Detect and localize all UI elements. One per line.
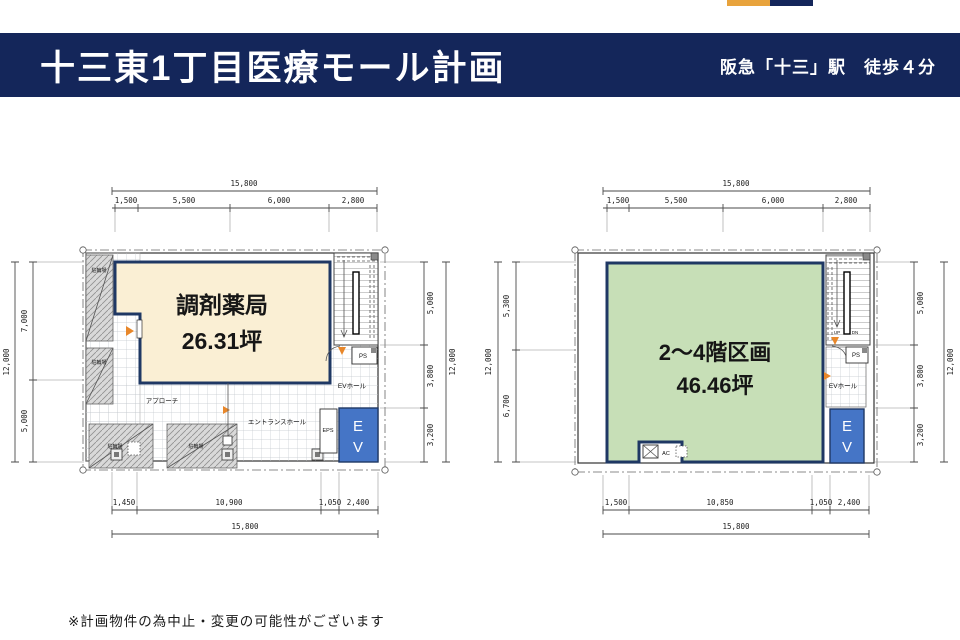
dim-label: 5,000: [20, 409, 29, 432]
dim-label: 5,000: [916, 291, 925, 314]
room-area-label: 46.46坪: [676, 373, 753, 398]
staircase: UP DN: [826, 253, 870, 345]
elevator-label: E: [842, 418, 852, 435]
dim-left: 5,300 6,700 12,000: [484, 262, 576, 462]
eps-label: EPS: [322, 428, 333, 434]
ps-label: PS: [852, 353, 860, 359]
floor-plan-pharmacy: 15,800 1,500 5,500 6,000 2,800 駐輪場 駐輪場 駐…: [0, 160, 480, 580]
dim-bottom: 1,500 10,850 1,050 2,400 15,800: [603, 475, 869, 538]
dim-top: 15,800 1,500 5,500 6,000 2,800: [112, 179, 377, 232]
dim-label: 2,400: [347, 498, 370, 507]
ps-post: [371, 348, 376, 353]
bike-parking-label: 駐輪場: [91, 359, 106, 366]
dim-label: 5,300: [502, 294, 511, 317]
dim-label: 7,000: [20, 309, 29, 332]
ev-hall-label: EVホール: [829, 382, 858, 390]
dim-label: 15,800: [230, 179, 258, 188]
entrance-hall-label: エントランスホール: [248, 418, 307, 426]
dim-label: 12,000: [2, 348, 11, 376]
room-area-label: 26.31坪: [182, 328, 263, 354]
dim-label: 12,000: [484, 348, 493, 376]
dim-label: 1,450: [113, 498, 136, 507]
dim-right: 5,000 3,800 3,200 12,000: [380, 262, 457, 462]
dim-left: 7,000 5,000 12,000: [2, 262, 84, 462]
approach-label: アプローチ: [146, 397, 179, 405]
dim-right: 5,000 3,800 3,200 12,000: [874, 262, 955, 462]
dim-label: 1,050: [319, 498, 342, 507]
stair-handrail: [353, 272, 359, 334]
entrance-post: [223, 436, 232, 445]
dim-label: 15,800: [722, 179, 750, 188]
stair-up-label: UP: [834, 330, 840, 335]
accent-bar-orange: [727, 0, 770, 6]
dim-label: 10,900: [215, 498, 243, 507]
dim-label: 15,800: [722, 522, 750, 531]
elevator-label: V: [842, 439, 852, 456]
dim-label: 1,500: [115, 196, 138, 205]
dim-label: 6,700: [502, 394, 511, 417]
elevator-label: E: [353, 418, 363, 435]
door-mark: [137, 320, 142, 338]
dim-bottom: 1,450 10,900 1,050 2,400 15,800: [112, 472, 378, 538]
header-bar: 十三東1丁目医療モール計画 阪急「十三」駅 徒歩４分: [0, 33, 960, 97]
elevator-label: V: [353, 439, 363, 456]
page-title: 十三東1丁目医療モール計画: [40, 40, 505, 91]
dim-label: 6,000: [762, 196, 785, 205]
dim-label: 1,050: [810, 498, 833, 507]
dim-label: 6,000: [268, 196, 291, 205]
dim-label: 5,000: [426, 291, 435, 314]
ps-post: [862, 348, 867, 353]
dim-label: 2,800: [835, 196, 858, 205]
stair-down-label: DN: [852, 330, 859, 335]
dim-label: 3,800: [426, 364, 435, 387]
ac-label: AC: [662, 451, 670, 457]
dim-label: 3,200: [916, 423, 925, 446]
dim-label: 12,000: [946, 348, 955, 376]
bike-parking-label: 駐輪場: [188, 443, 203, 450]
disclaimer-text: ※計画物件の為中止・変更の可能性がございます: [68, 610, 385, 630]
dim-label: 5,500: [173, 196, 196, 205]
dim-top: 15,800 1,500 5,500 6,000 2,800: [603, 179, 870, 232]
dim-label: 10,850: [706, 498, 734, 507]
floor-plan-upper-floors: 15,800 1,500 5,500 6,000 2,800 2〜4階区画 46…: [480, 160, 960, 580]
dim-label: 2,400: [838, 498, 861, 507]
ev-hall-label: EVホール: [338, 382, 367, 390]
dim-label: 1,500: [605, 498, 628, 507]
room-name-label: 調剤薬局: [176, 292, 268, 318]
dim-label: 15,800: [231, 522, 259, 531]
staircase: [334, 253, 378, 345]
accent-bar-navy: [770, 0, 813, 6]
dim-label: 2,800: [342, 196, 365, 205]
dim-label: 12,000: [448, 348, 457, 376]
pharmacy-room: [115, 262, 330, 383]
stair-handrail: [844, 272, 850, 334]
room-name-label: 2〜4階区画: [659, 340, 771, 365]
dim-label: 1,500: [607, 196, 630, 205]
dim-label: 5,500: [665, 196, 688, 205]
ps-label: PS: [359, 354, 367, 360]
bike-parking-label: 駐輪場: [91, 267, 106, 274]
station-access-label: 阪急「十三」駅 徒歩４分: [720, 53, 936, 78]
dim-label: 3,800: [916, 364, 925, 387]
dim-label: 3,200: [426, 423, 435, 446]
